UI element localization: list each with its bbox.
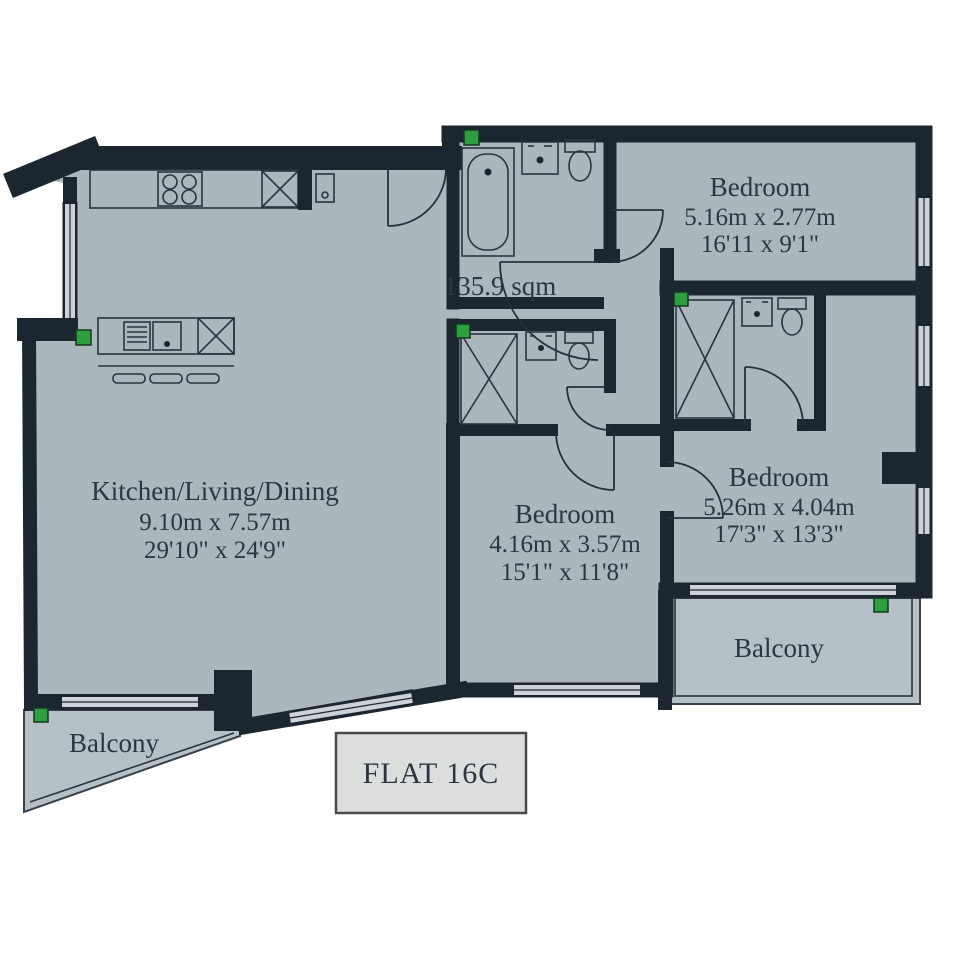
floorplan-svg: 135.9 sqm Bedroom 5.16m x 2.77m 16'11 x … (0, 0, 980, 980)
wall-balcony-right-stub (658, 590, 672, 710)
room-name: Bedroom (729, 462, 830, 492)
wall-left (29, 330, 31, 704)
vent-icon (456, 324, 470, 338)
wall-duct-right (882, 452, 920, 484)
room-dim-imperial: 15'1" x 11'8" (501, 559, 630, 586)
balcony-left-floor (24, 710, 240, 812)
room-name: Bedroom (515, 499, 616, 529)
vent-icon (464, 130, 479, 145)
balcony-left-label: Balcony (69, 728, 159, 758)
room-dim-imperial: 17'3" x 13'3" (714, 521, 843, 548)
total-area-label: 135.9 sqm (444, 271, 557, 301)
floorplan-page: 135.9 sqm Bedroom 5.16m x 2.77m 16'11 x … (0, 0, 980, 980)
room-dim-imperial: 29'10" x 24'9" (144, 537, 286, 564)
flat-label-box: FLAT 16C (336, 733, 526, 813)
room-name: Kitchen/Living/Dining (91, 476, 338, 506)
vent-icon (674, 292, 688, 306)
room-name: Bedroom (710, 172, 811, 202)
flat-label: FLAT 16C (363, 757, 500, 790)
room-dim-metric: 5.26m x 4.04m (703, 494, 855, 521)
room-dim-metric: 5.16m x 2.77m (684, 204, 836, 231)
vent-icon (76, 330, 91, 345)
vent-icon (874, 598, 888, 612)
room-dim-imperial: 16'11 x 9'1" (701, 231, 819, 258)
room-dim-metric: 4.16m x 3.57m (489, 531, 641, 558)
wall-pier-kitchen (298, 166, 312, 210)
room-dim-metric: 9.10m x 7.57m (139, 509, 291, 536)
vent-icon (34, 708, 48, 722)
balcony-right-label: Balcony (734, 633, 824, 663)
